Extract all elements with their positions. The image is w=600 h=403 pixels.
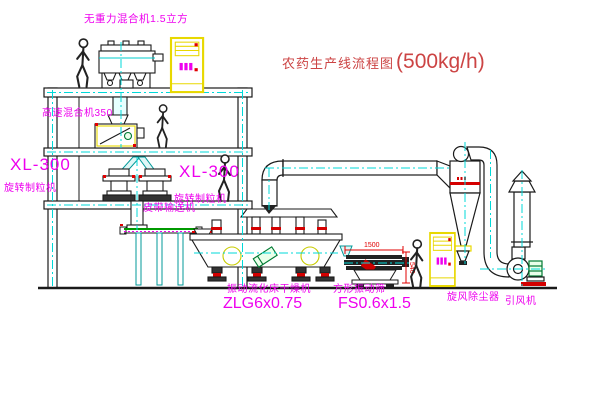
fan-label: 引风机 bbox=[505, 297, 537, 307]
flow-diagram-canvas: 1500 540 农药生产线流程图 (500kg/h) 无重力混合机1.5立方 … bbox=[0, 0, 600, 403]
screen-name-label: 方形振动筛 bbox=[333, 285, 386, 295]
high-speed-mixer-label: 高速混合机350 bbox=[42, 109, 113, 119]
fluid-bed-dryer bbox=[190, 209, 342, 281]
control-cabinet-top bbox=[171, 38, 203, 92]
belt-conveyor-label: 皮带输送机 bbox=[143, 204, 196, 214]
high-speed-mixer bbox=[95, 97, 144, 148]
dimension-1500: 1500 bbox=[364, 242, 380, 249]
granulator-left bbox=[103, 169, 135, 201]
granulator-left-model-label: XL-300 bbox=[10, 156, 71, 173]
drawing-title-text: 农药生产线流程图 bbox=[282, 53, 394, 72]
cyclone-label: 旋风除尘器 bbox=[447, 293, 500, 303]
exhaust-duct bbox=[262, 159, 450, 214]
zero-gravity-mixer bbox=[99, 41, 163, 88]
screen-model-label: FS0.6x1.5 bbox=[338, 296, 411, 312]
dryer-model-label: ZLG6x0.75 bbox=[223, 296, 302, 312]
granulator-right bbox=[139, 169, 171, 201]
granulator-right-model-label: XL-300 bbox=[179, 163, 240, 180]
dryer-name-label: 振动流化床干燥机 bbox=[227, 285, 311, 295]
granulator-left-name-label: 旋转制粒机 bbox=[4, 184, 57, 194]
vibrating-screen bbox=[340, 246, 409, 287]
person-second-floor bbox=[158, 105, 168, 147]
drawing-title-capacity: (500kg/h) bbox=[396, 50, 485, 74]
belt-conveyor bbox=[120, 224, 202, 285]
zero-gravity-mixer-label: 无重力混合机1.5立方 bbox=[84, 14, 188, 25]
drawing-title: 农药生产线流程图 (500kg/h) bbox=[282, 50, 485, 74]
control-cabinet-ground bbox=[430, 233, 455, 286]
person-top-floor bbox=[77, 39, 88, 87]
induced-draft-fan bbox=[507, 258, 546, 286]
